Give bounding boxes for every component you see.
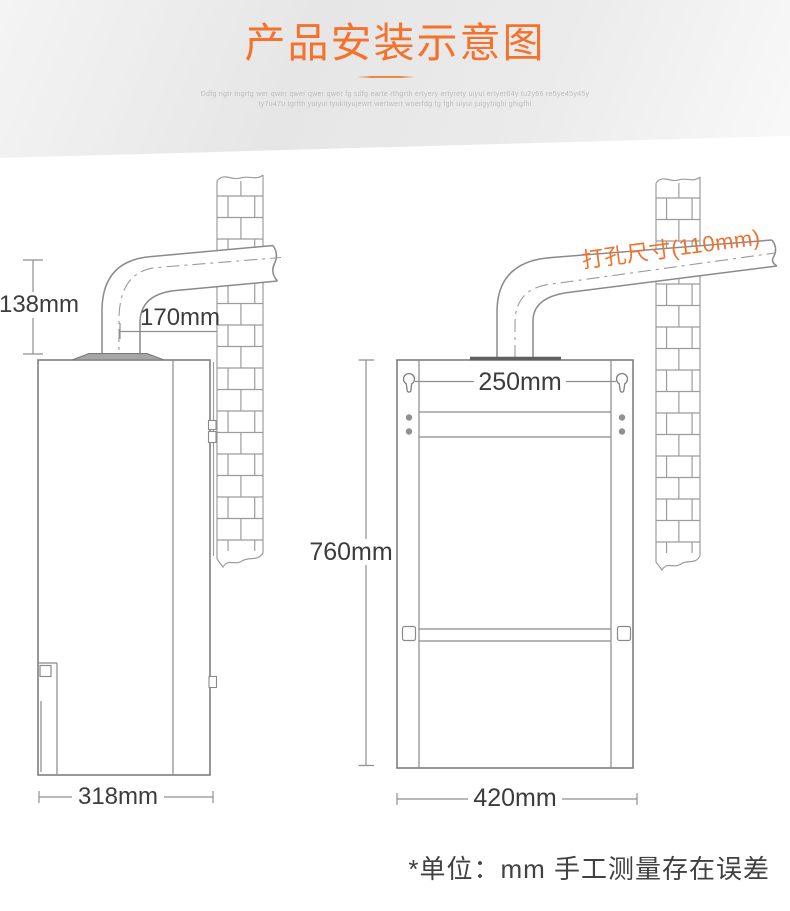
wall-left-bottom-wavy <box>217 553 263 567</box>
heater-side-body <box>38 360 210 775</box>
installation-drawing <box>0 0 790 911</box>
dim-label-flue-height: 138mm <box>0 292 81 318</box>
heater-side-view <box>38 354 217 776</box>
flue-collar-side <box>72 354 164 361</box>
brick-wall-left <box>217 175 263 567</box>
heater-front-view <box>397 359 633 769</box>
dim-label-body-width: 420mm <box>468 785 562 811</box>
dim-label-bracket-spacing: 250mm <box>474 369 566 395</box>
brick-courses-left <box>217 181 263 551</box>
dim-label-flue-to-wall: 170mm <box>140 305 220 331</box>
mounting-plate-outline <box>397 360 633 768</box>
unit-disclaimer-note: *单位：mm 手工测量存在误差 <box>408 849 770 886</box>
wall-left-edges <box>217 175 263 559</box>
dim-label-body-height: 760mm <box>309 539 393 565</box>
dim-label-body-depth: 318mm <box>72 784 164 810</box>
wall-right-bottom-wavy <box>656 556 700 570</box>
wall-left-top-wavy <box>217 175 263 181</box>
wall-right-top-wavy <box>656 177 700 183</box>
product-install-diagram-page: 产品安装示意图 Ddfg ngtr tngrtg wer qwer qwer q… <box>0 0 790 911</box>
